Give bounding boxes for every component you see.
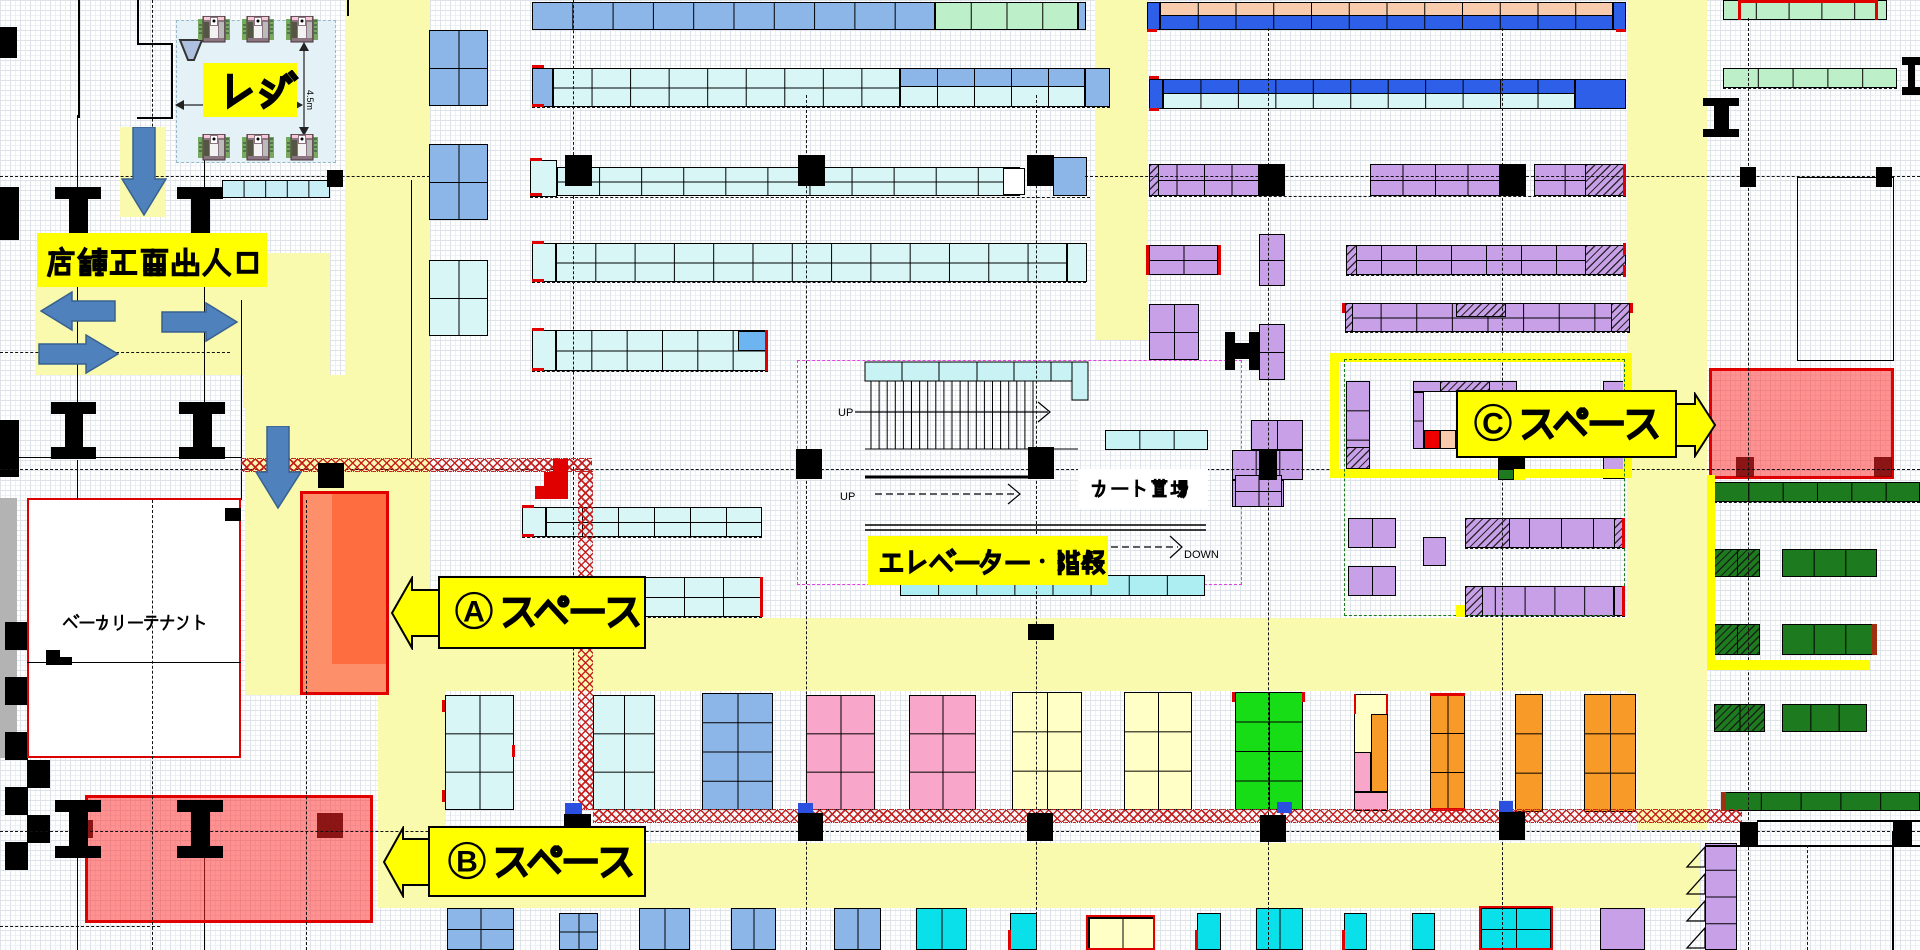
svg-text:C: C bbox=[1482, 407, 1504, 440]
svg-text:UP: UP bbox=[838, 407, 853, 419]
svg-text:B: B bbox=[456, 845, 478, 878]
svg-text:UP: UP bbox=[840, 491, 855, 503]
svg-text:A: A bbox=[463, 595, 485, 628]
svg-text:DOWN: DOWN bbox=[1184, 549, 1219, 561]
svg-text:4.5m: 4.5m bbox=[305, 90, 315, 110]
